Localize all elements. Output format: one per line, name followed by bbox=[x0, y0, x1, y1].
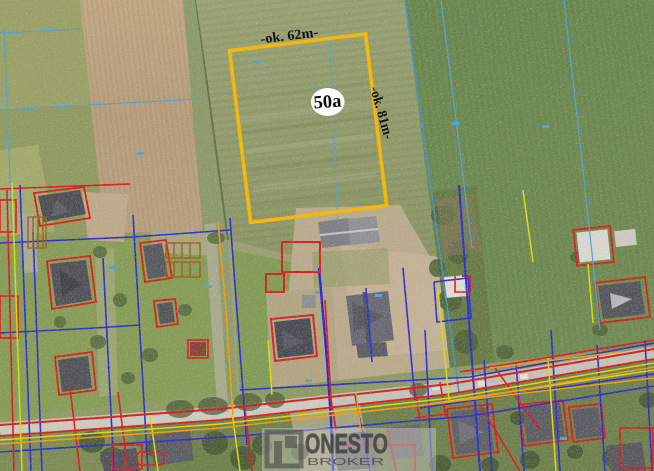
svg-text:50a: 50a bbox=[313, 92, 342, 114]
svg-text:BROKER: BROKER bbox=[307, 456, 385, 468]
svg-text:ONESTO: ONESTO bbox=[305, 428, 388, 459]
